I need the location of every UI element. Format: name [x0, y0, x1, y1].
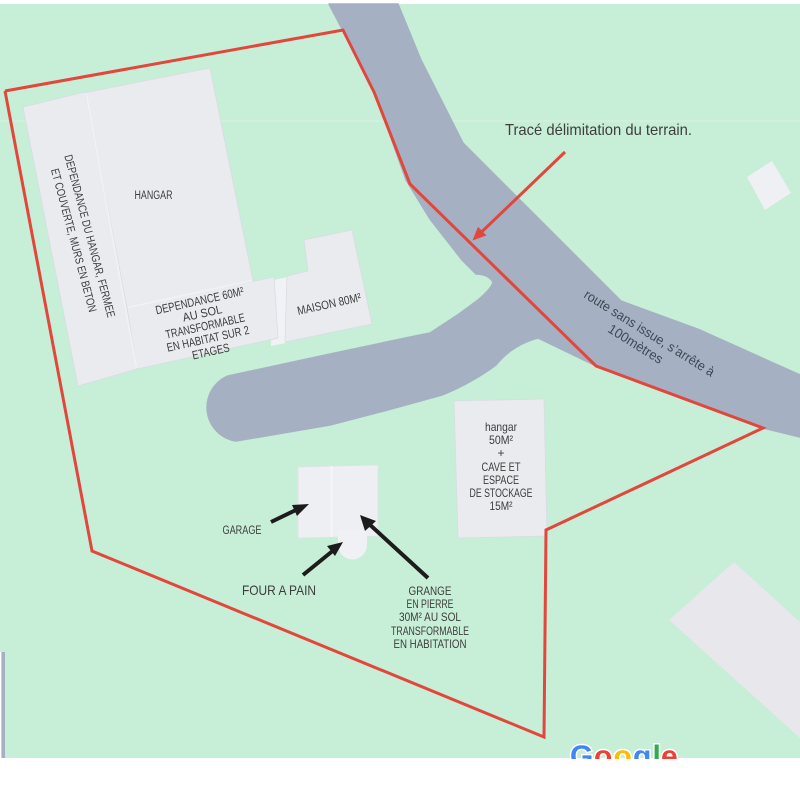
svg-text:ESPACE: ESPACE — [483, 473, 519, 487]
svg-text:HANGAR: HANGAR — [135, 190, 173, 202]
svg-text:15M²: 15M² — [490, 499, 513, 513]
svg-text:EN PIERRE: EN PIERRE — [407, 597, 454, 611]
svg-text:Tracé délimitation du terrain.: Tracé délimitation du terrain. — [505, 122, 692, 139]
svg-text:GRANGE: GRANGE — [409, 584, 452, 598]
svg-text:TRANSFORMABLE: TRANSFORMABLE — [391, 624, 469, 638]
svg-text:EN HABITATION: EN HABITATION — [394, 637, 467, 651]
svg-text:30M² AU SOL: 30M² AU SOL — [399, 610, 461, 624]
svg-text:hangar: hangar — [485, 420, 517, 434]
svg-text:FOUR A PAIN: FOUR A PAIN — [242, 582, 316, 598]
svg-text:CAVE ET: CAVE ET — [482, 460, 522, 474]
svg-text:+: + — [497, 446, 504, 460]
svg-text:DE STOCKAGE: DE STOCKAGE — [470, 486, 533, 500]
svg-text:50M²: 50M² — [489, 433, 513, 447]
svg-text:GARAGE: GARAGE — [223, 525, 262, 537]
